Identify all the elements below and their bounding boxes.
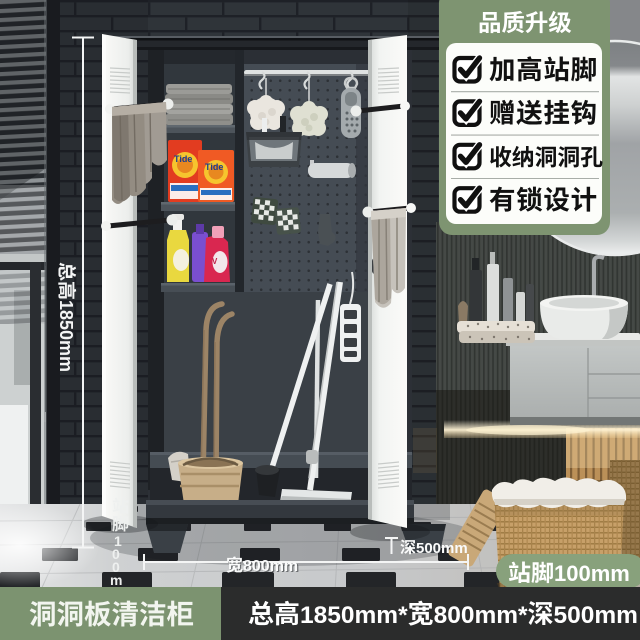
svg-text:V: V <box>212 257 218 266</box>
svg-text:1850mm*: 1850mm* <box>300 602 408 629</box>
svg-text:Tide: Tide <box>205 162 223 172</box>
svg-text:500mm: 500mm <box>416 540 468 557</box>
svg-text:800mm: 800mm <box>243 558 298 575</box>
svg-text:Tide: Tide <box>174 154 192 164</box>
svg-text:m: m <box>110 572 122 588</box>
svg-text:800mm*: 800mm* <box>434 602 528 629</box>
svg-text:500mm: 500mm <box>554 602 638 629</box>
svg-text:100mm: 100mm <box>554 561 630 586</box>
svg-text:1850mm: 1850mm <box>56 300 76 372</box>
